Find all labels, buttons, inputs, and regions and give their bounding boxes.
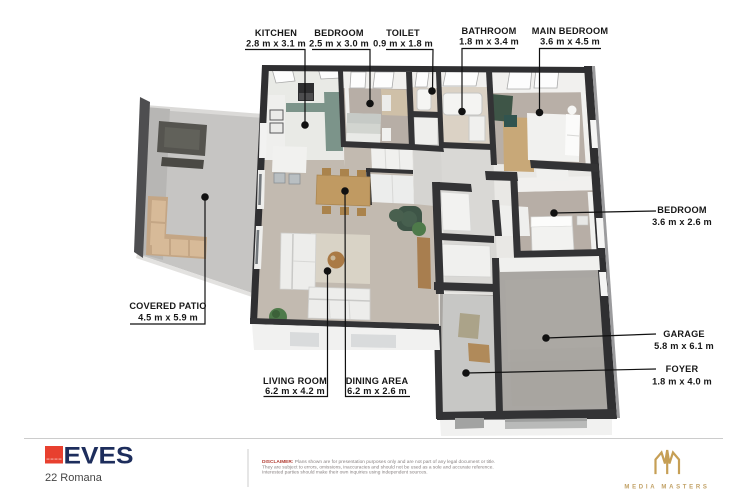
svg-text:TOILET: TOILET [386,28,420,38]
svg-text:5.8 m x 6.1 m: 5.8 m x 6.1 m [654,341,714,351]
svg-text:LIVING ROOM: LIVING ROOM [263,376,327,386]
svg-text:FOYER: FOYER [666,364,699,374]
svg-text:EVES: EVES [64,443,134,470]
svg-text:BATHROOM: BATHROOM [461,26,516,36]
svg-text:MAIN BEDROOM: MAIN BEDROOM [532,26,609,36]
svg-text:0.9 m x 1.8 m: 0.9 m x 1.8 m [373,39,433,49]
svg-text:6.2 m x 2.6 m: 6.2 m x 2.6 m [347,386,407,396]
svg-text:3.6 m x 4.5 m: 3.6 m x 4.5 m [540,37,600,47]
svg-text:MEDIA MASTERS: MEDIA MASTERS [624,485,709,491]
svg-text:6.2 m x 4.2 m: 6.2 m x 4.2 m [265,386,325,396]
svg-text:KITCHEN: KITCHEN [255,28,297,38]
svg-text:DISCLAIMER: Plans shown are fo: DISCLAIMER: Plans shown are for presenta… [262,459,495,465]
svg-text:Interested parties should make: Interested parties should make their own… [262,470,428,476]
svg-text:3.6 m x 2.6 m: 3.6 m x 2.6 m [652,217,712,227]
svg-text:1.8 m x 4.0 m: 1.8 m x 4.0 m [652,377,712,387]
svg-text:1.8 m x 3.4 m: 1.8 m x 3.4 m [459,37,519,47]
svg-text:22 Romana: 22 Romana [45,472,103,484]
svg-text:GARAGE: GARAGE [663,329,705,339]
svg-text:They are subject to errors, om: They are subject to errors, omissions, i… [262,464,494,470]
svg-text:4.5 m x 5.9 m: 4.5 m x 5.9 m [138,313,198,323]
svg-text:2.8 m x 3.1 m: 2.8 m x 3.1 m [246,39,306,49]
svg-text:BEDROOM: BEDROOM [314,28,364,38]
svg-text:DINING AREA: DINING AREA [346,376,409,386]
svg-text:2.5 m x 3.0 m: 2.5 m x 3.0 m [309,39,369,49]
svg-text:BEDROOM: BEDROOM [657,205,707,215]
svg-text:COVERED PATIO: COVERED PATIO [129,301,206,311]
